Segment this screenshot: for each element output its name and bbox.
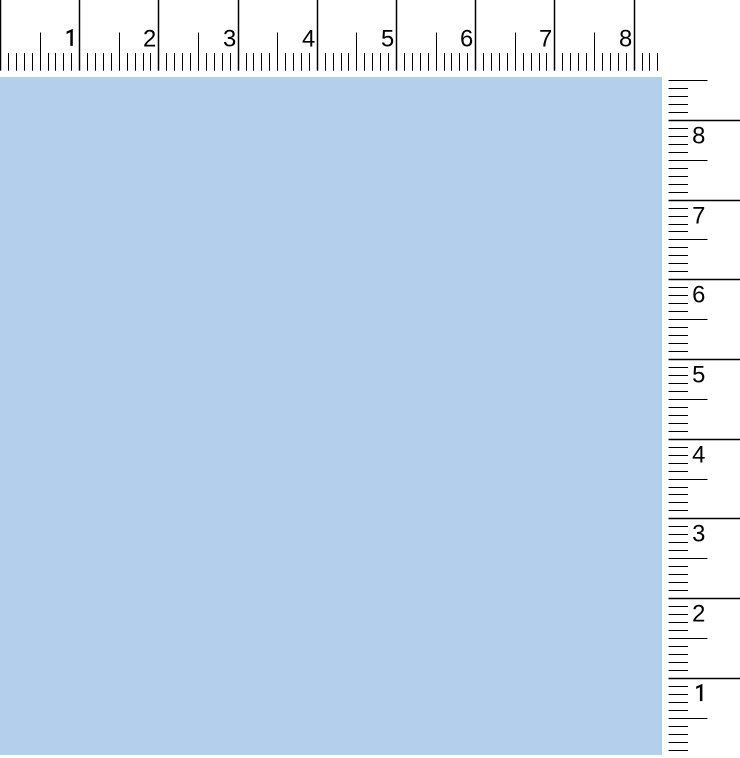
svg-text:7: 7 [539,25,552,52]
svg-text:6: 6 [692,282,705,309]
svg-text:8: 8 [619,25,632,52]
svg-text:4: 4 [302,25,315,52]
svg-text:6: 6 [460,25,473,52]
svg-text:3: 3 [692,521,705,548]
svg-text:5: 5 [692,362,705,389]
svg-text:2: 2 [143,25,156,52]
svg-text:7: 7 [692,203,705,230]
svg-text:4: 4 [692,442,705,469]
svg-text:3: 3 [223,25,236,52]
svg-text:5: 5 [381,25,394,52]
svg-text:8: 8 [692,123,705,150]
svg-text:2: 2 [692,601,705,628]
